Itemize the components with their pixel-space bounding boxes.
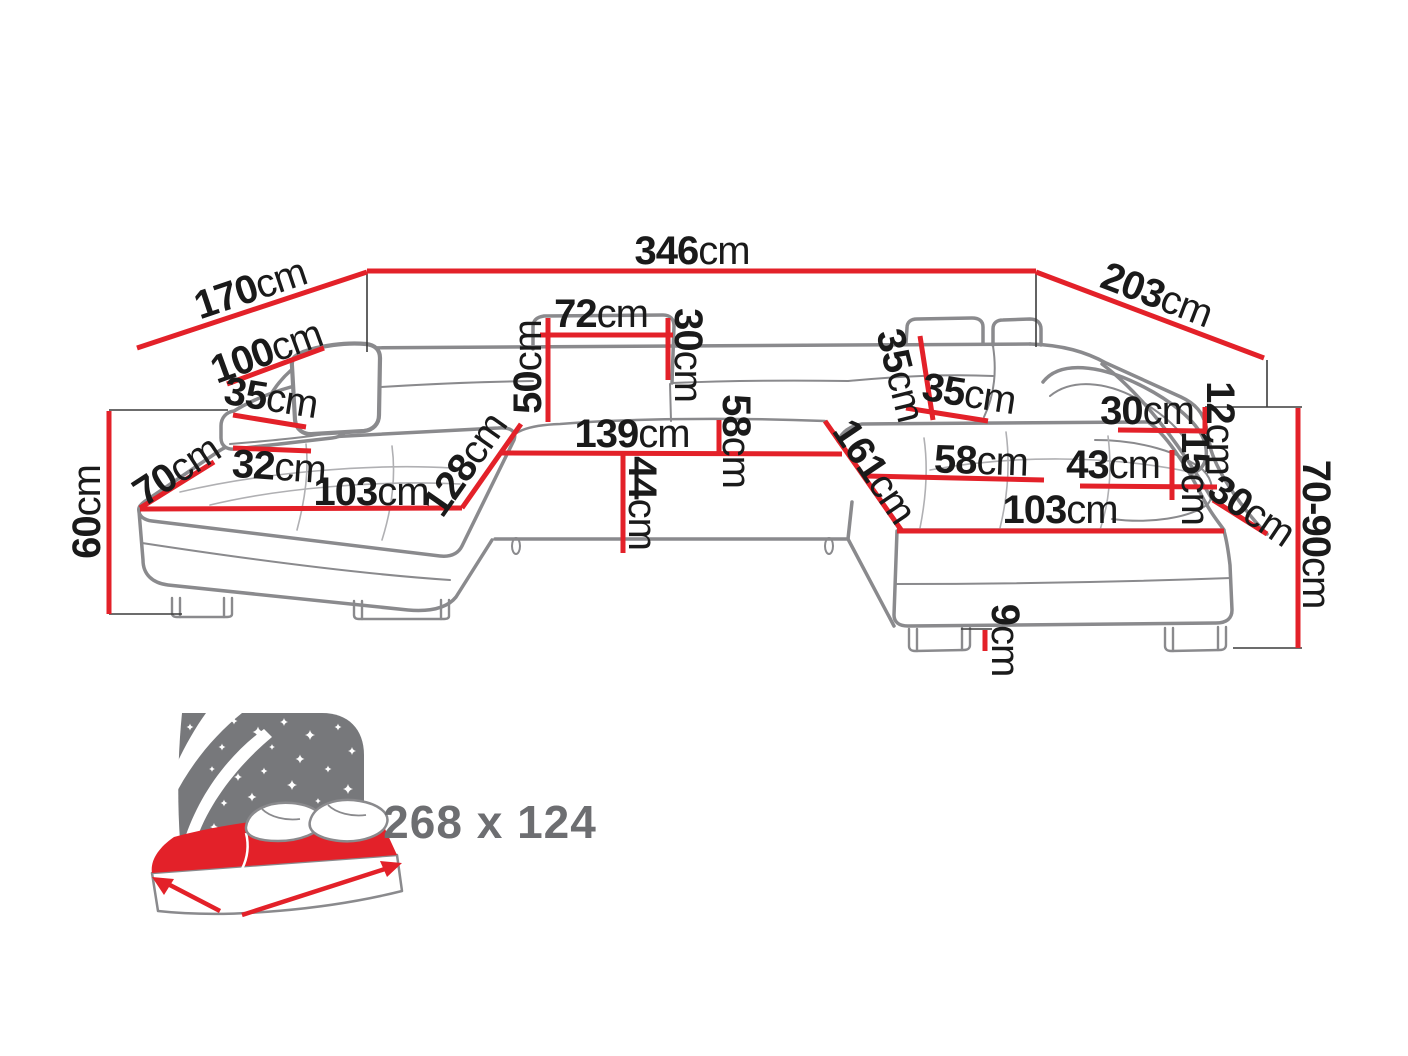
dim-label-15: 15cm [1173, 431, 1217, 525]
dim-label-70-90: 70-90cm [1294, 460, 1338, 609]
sleeping-area-icon: 268 x 124 [146, 713, 597, 915]
dim-label-170: 170cm [189, 250, 312, 328]
dim-label-50: 50cm [506, 320, 550, 414]
sofa-dimension-diagram: 170cm 346cm 203cm 100cm 35cm 32cm 70cm 6… [0, 0, 1408, 1056]
dim-label-60: 60cm [65, 465, 109, 559]
dim-label-58-right: 58cm [933, 437, 1028, 484]
diagram-page: 170cm 346cm 203cm 100cm 35cm 32cm 70cm 6… [0, 0, 1408, 1056]
dim-label-44: 44cm [620, 456, 664, 550]
sleeping-area-label: 268 x 124 [383, 796, 597, 848]
dim-label-103-left: 103cm [313, 470, 428, 514]
dim-label-346: 346cm [634, 229, 749, 273]
right-chaise-feet [909, 627, 1226, 651]
dim-label-203: 203cm [1095, 254, 1218, 336]
dim-label-30-diag: 30cm [1200, 466, 1302, 555]
dim-label-9: 9cm [983, 604, 1027, 677]
dim-label-58-mid: 58cm [714, 394, 758, 488]
dim-label-139: 139cm [574, 412, 689, 456]
dim-label-30-mid: 30cm [666, 308, 710, 402]
dim-label-103-right: 103cm [1002, 488, 1117, 532]
dim-label-30-right: 30cm [1100, 389, 1194, 433]
dim-label-72: 72cm [554, 292, 648, 336]
dim-label-43: 43cm [1066, 443, 1160, 487]
